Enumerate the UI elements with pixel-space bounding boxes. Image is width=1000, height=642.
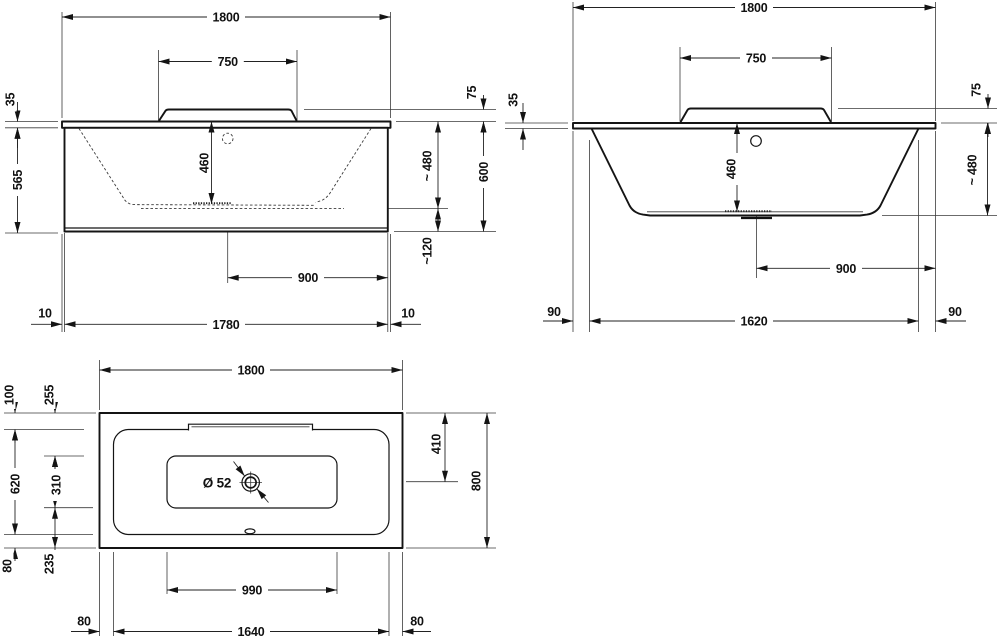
drawing-canvas: 1800 750 35 565 460 ~ 480 600 ~120 [0, 0, 1000, 642]
dim-text: 90 [547, 305, 561, 319]
plan-dim-label-800: 800 [470, 465, 484, 497]
front-dim-label-600: 600 [477, 156, 491, 188]
dim-text: 75 [970, 83, 984, 97]
side-dim-label-1620: 1620 [735, 315, 773, 329]
dim-text: 800 [470, 471, 484, 492]
front-dim-label-10-right: 10 [401, 307, 415, 321]
side-dim-label-1800: 1800 [735, 1, 773, 15]
side-tub-outline [573, 109, 936, 219]
dim-text: 410 [430, 434, 444, 455]
dim-text: 460 [725, 159, 739, 180]
front-dim-label-460: 460 [198, 147, 212, 179]
dim-text: 310 [50, 475, 64, 496]
side-rim [573, 123, 936, 129]
plan-dim-label-620: 620 [9, 468, 23, 500]
front-dim-label-10-left: 10 [38, 307, 52, 321]
dim-text: 10 [401, 307, 415, 321]
front-elevation-view: 1800 750 35 565 460 ~ 480 600 ~120 [4, 11, 497, 333]
plan-drain-diameter-label: Ø 52 [203, 476, 231, 491]
plan-dim-label-80-right: 80 [410, 615, 424, 629]
dim-text: 990 [242, 584, 263, 598]
side-section-view: 1800 750 35 75 460 ~ 480 900 90 [505, 1, 997, 332]
plan-floor-rect [167, 456, 337, 508]
bathtub-technical-drawing: 1800 750 35 565 460 ~ 480 600 ~120 [0, 0, 1000, 642]
dim-text: 1800 [740, 1, 767, 15]
dim-text: ~ 480 [966, 154, 980, 185]
dim-text: 80 [1, 559, 15, 573]
front-dim-label-565: 565 [11, 164, 25, 196]
dim-text: 100 [3, 385, 17, 406]
dim-text: 600 [477, 162, 491, 183]
dim-text: 1800 [212, 11, 239, 25]
dim-text: 255 [43, 385, 57, 406]
plan-dim-label-1640: 1640 [232, 625, 270, 639]
side-dim-label-35: 35 [507, 88, 521, 112]
dim-text: 750 [218, 55, 239, 69]
front-dim-label-35: 35 [4, 88, 18, 112]
front-dim-label-480: ~ 480 [421, 145, 435, 187]
side-dim-label-75: 75 [970, 78, 984, 102]
dim-text: 460 [198, 153, 212, 174]
dim-text: 620 [9, 474, 23, 495]
dim-text: 80 [77, 615, 91, 629]
side-dim-label-90-left: 90 [547, 305, 561, 319]
plan-dim-label-80-bottomleft: 80 [1, 554, 15, 578]
plan-tub-outline [100, 413, 403, 548]
dim-text: 900 [298, 271, 319, 285]
dim-text: 565 [11, 170, 25, 191]
front-tub-outline [62, 110, 391, 232]
plan-dim-label-235: 235 [43, 550, 57, 578]
drain-diameter-text: Ø 52 [203, 476, 231, 491]
side-tub-shell [592, 129, 919, 216]
plan-view: 1800 100 255 620 310 80 235 410 [1, 360, 497, 639]
side-dim-label-460: 460 [725, 153, 739, 185]
dim-text: 80 [410, 615, 424, 629]
plan-dim-label-100: 100 [3, 381, 17, 409]
front-dim-label-120: ~120 [421, 233, 435, 269]
plan-dim-label-80-left: 80 [77, 615, 91, 629]
dim-text: 900 [836, 262, 857, 276]
dim-text: 1640 [237, 625, 264, 639]
plan-dim-label-255: 255 [43, 381, 57, 409]
dim-text: ~120 [421, 237, 435, 265]
dim-text: 1780 [212, 318, 239, 332]
plan-dim-label-410: 410 [430, 428, 444, 460]
front-dim-label-1800: 1800 [207, 11, 245, 25]
dim-text: 35 [507, 93, 521, 107]
plan-dim-label-1800: 1800 [232, 364, 270, 378]
dim-text: 235 [43, 554, 57, 575]
side-dim-label-900: 900 [830, 262, 862, 276]
dim-text: 750 [746, 52, 767, 66]
front-dim-label-1780: 1780 [207, 318, 245, 332]
side-dim-label-90-right: 90 [948, 305, 962, 319]
plan-dim-label-990: 990 [236, 584, 268, 598]
plan-dim-label-310: 310 [50, 469, 64, 501]
front-dim-label-75: 75 [465, 81, 479, 105]
front-dim-label-900: 900 [292, 271, 324, 285]
dim-text: 10 [38, 307, 52, 321]
dim-text: 35 [4, 93, 18, 107]
dim-text: 90 [948, 305, 962, 319]
dim-text: ~ 480 [421, 150, 435, 181]
dim-text: 1620 [740, 315, 767, 329]
front-backrest [159, 110, 298, 122]
dim-text: 1800 [237, 364, 264, 378]
plan-backrest-edge [189, 424, 313, 430]
side-dim-label-750: 750 [740, 52, 772, 66]
dim-text: 75 [465, 86, 479, 100]
front-dim-label-750: 750 [212, 55, 244, 69]
side-dim-label-480: ~ 480 [966, 149, 980, 191]
side-backrest [680, 109, 832, 124]
